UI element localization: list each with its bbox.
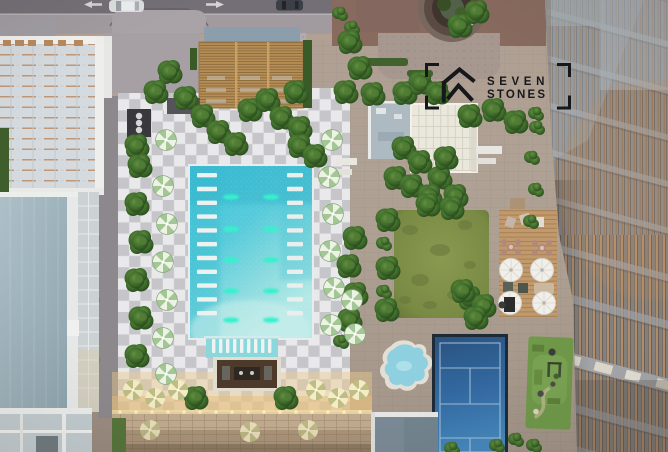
svg-text:STONES: STONES bbox=[487, 89, 547, 101]
svg-text:SEVEN: SEVEN bbox=[487, 76, 549, 88]
